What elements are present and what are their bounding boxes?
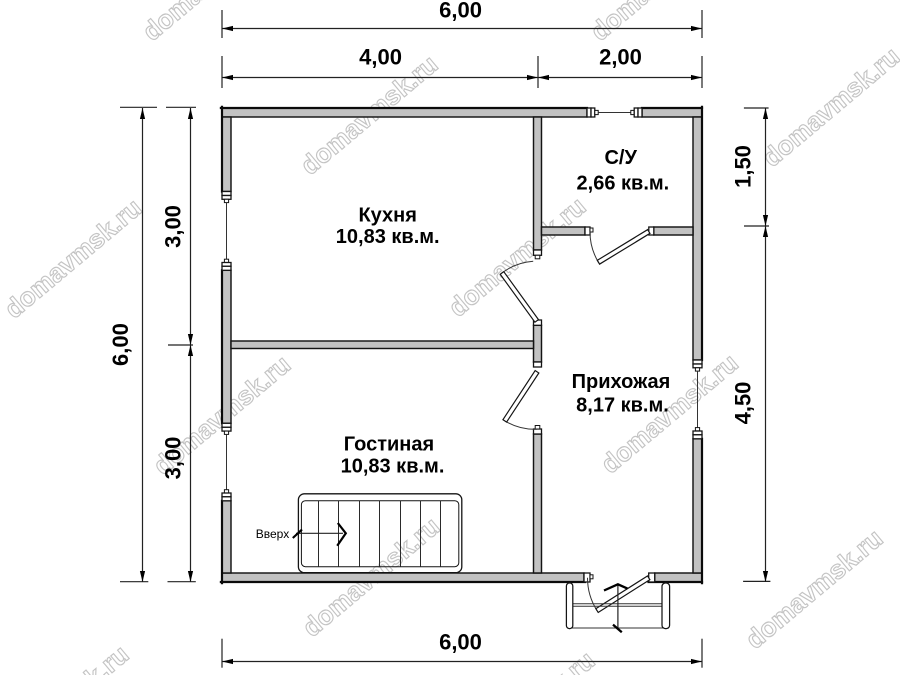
svg-text:10,83 кв.м.: 10,83 кв.м. — [341, 455, 445, 477]
svg-text:С/У: С/У — [604, 147, 637, 169]
svg-text:Кухня: Кухня — [358, 205, 416, 227]
svg-text:8,17 кв.м.: 8,17 кв.м. — [576, 394, 669, 416]
svg-text:6,00: 6,00 — [439, 0, 482, 23]
svg-text:3,00: 3,00 — [161, 437, 186, 480]
svg-text:Гостиная: Гостиная — [344, 433, 434, 455]
svg-text:Вверх: Вверх — [256, 527, 289, 541]
svg-text:4,00: 4,00 — [359, 44, 402, 69]
svg-text:6,00: 6,00 — [439, 630, 482, 655]
svg-text:3,00: 3,00 — [161, 205, 186, 248]
svg-text:2,66 кв.м.: 2,66 кв.м. — [577, 173, 670, 195]
svg-text:10,83 кв.м.: 10,83 кв.м. — [336, 226, 440, 248]
svg-text:2,00: 2,00 — [599, 44, 642, 69]
svg-text:1,50: 1,50 — [731, 145, 756, 188]
svg-text:6,00: 6,00 — [108, 323, 133, 366]
svg-text:4,50: 4,50 — [731, 382, 756, 425]
svg-text:Прихожая: Прихожая — [572, 371, 671, 393]
